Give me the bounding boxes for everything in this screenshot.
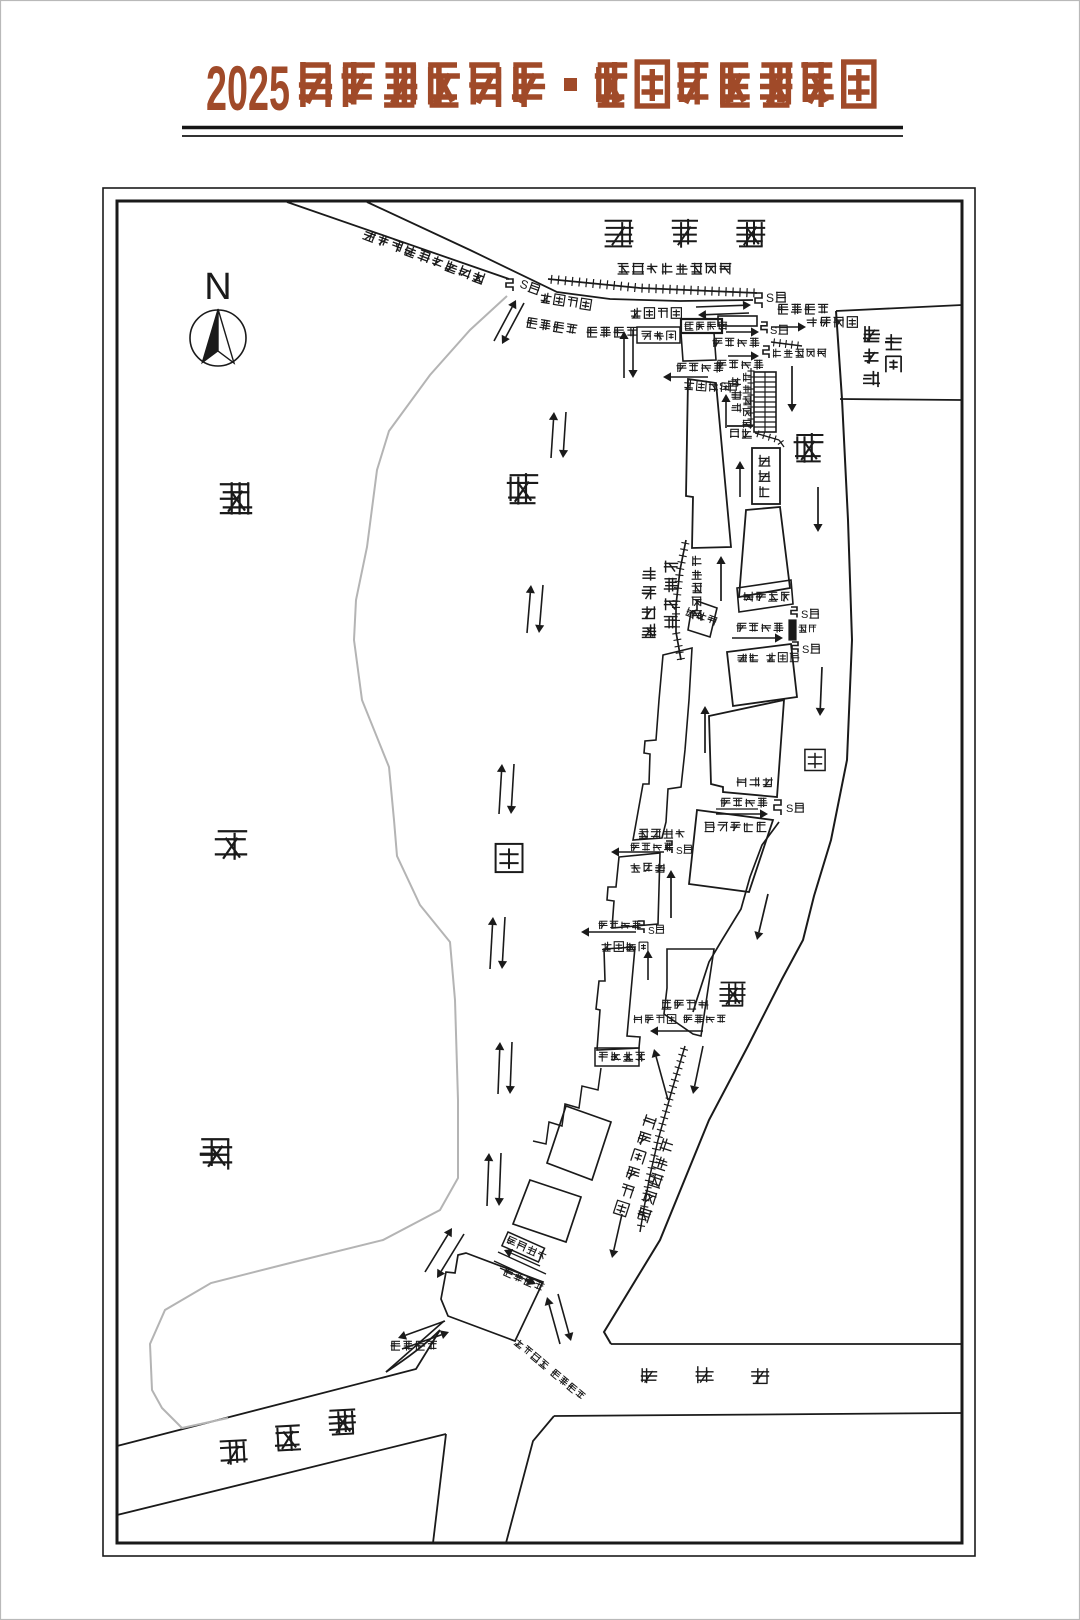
svg-text:2025: 2025 [206, 54, 290, 124]
svg-text:N: N [204, 266, 231, 308]
svg-text:S: S [648, 926, 655, 937]
svg-text:S: S [801, 609, 808, 621]
svg-text:S: S [676, 846, 683, 857]
svg-text:S: S [766, 291, 774, 305]
svg-text:S: S [770, 325, 777, 337]
svg-text:S: S [719, 381, 726, 393]
svg-text:S: S [802, 644, 809, 656]
svg-text:S: S [786, 803, 793, 815]
